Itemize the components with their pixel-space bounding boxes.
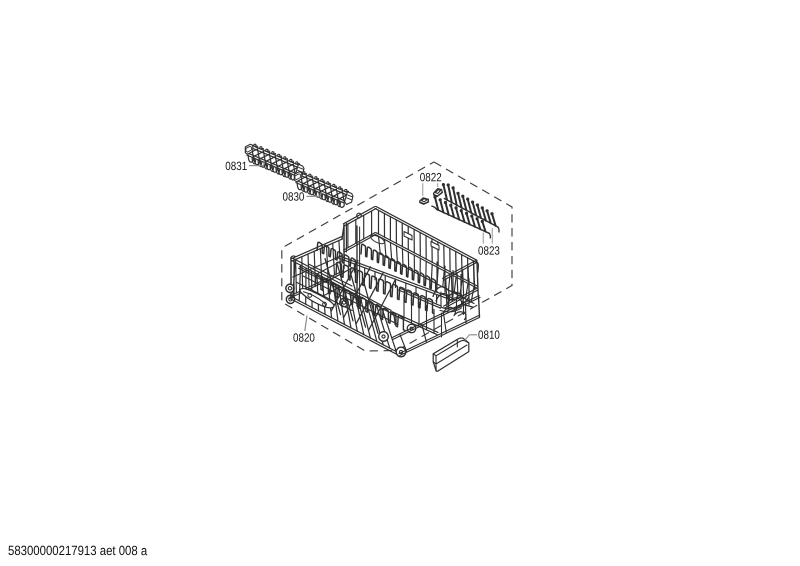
svg-text:0830: 0830: [282, 191, 304, 204]
svg-text:0820: 0820: [293, 332, 315, 345]
svg-text:0822: 0822: [420, 171, 442, 184]
svg-text:0823: 0823: [478, 245, 500, 258]
svg-text:58300000217913 aet 008 a: 58300000217913 aet 008 a: [8, 543, 147, 558]
svg-text:0831: 0831: [225, 160, 247, 173]
svg-text:0810: 0810: [478, 329, 500, 342]
